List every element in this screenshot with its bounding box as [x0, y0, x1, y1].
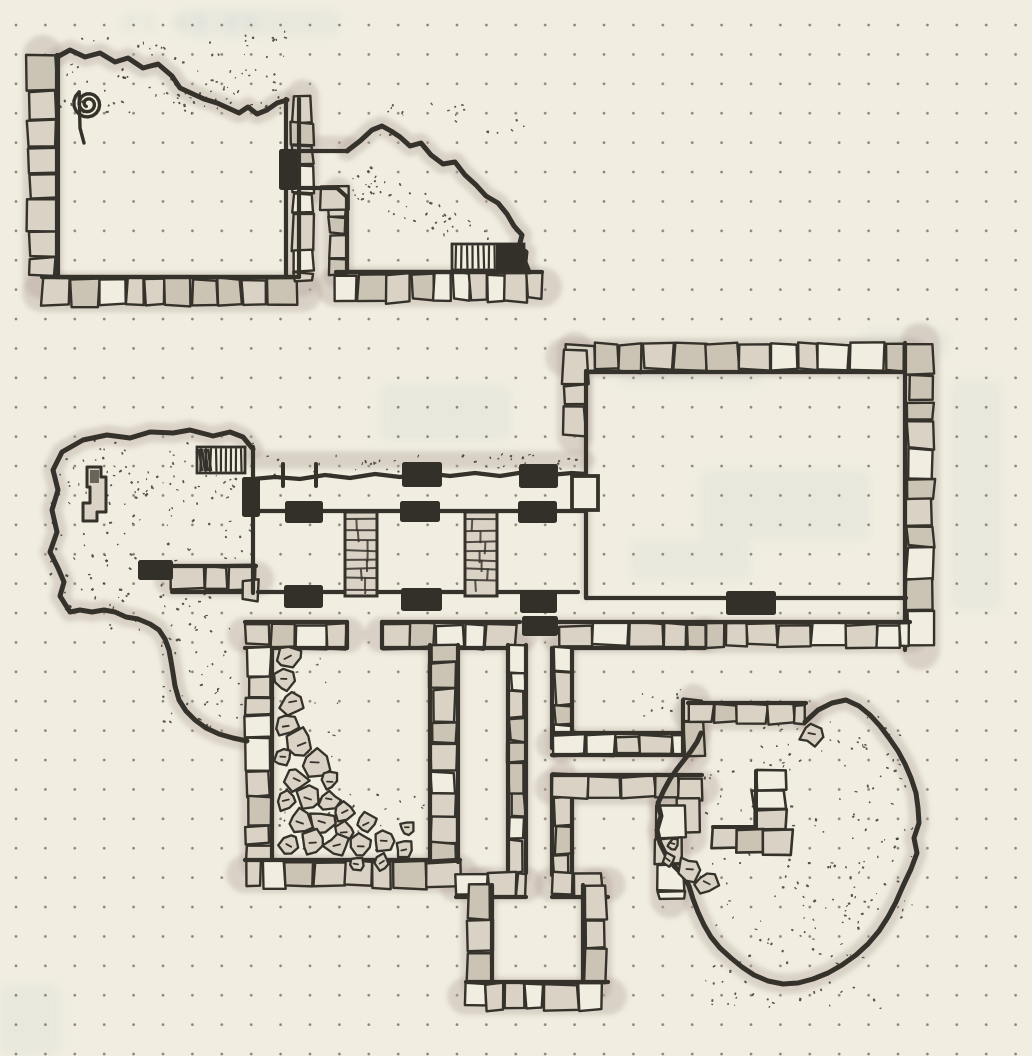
door-top-corridor-south-2 — [400, 501, 440, 522]
door-cavern-to-top-corridor — [242, 477, 260, 517]
wall-corridor-south-3 — [558, 621, 706, 649]
wall-corridor-south-4 — [705, 622, 910, 648]
door-top-corridor-north-1 — [402, 462, 442, 487]
wall-east-room-south — [552, 733, 690, 756]
wall-rubble-room-east — [429, 645, 458, 862]
door-top-corridor-north-2 — [519, 464, 558, 488]
door-cave-partition — [138, 560, 173, 580]
boulder — [274, 749, 290, 765]
door-bottom-corridor-north-2 — [401, 588, 442, 611]
masonry-pillar-2 — [465, 512, 497, 596]
door-room-a-to-b — [279, 149, 298, 190]
wall-east-strip-south — [688, 702, 806, 725]
scanned-journal-page: 21 24 25 — [0, 0, 1032, 1056]
door-top-corridor-south-3 — [518, 501, 557, 523]
wall-small-room-east — [583, 885, 607, 985]
door-stair-corridor-top — [522, 616, 558, 636]
door-great-hall-south — [726, 591, 776, 615]
masonry-pillar-1 — [345, 512, 377, 596]
door-bottom-corridor-north-3 — [520, 590, 557, 613]
door-bottom-corridor-north-1 — [284, 585, 323, 608]
wall-room-a-west — [26, 55, 58, 279]
wall-room-b-south — [335, 271, 543, 303]
stairs-room-b — [452, 243, 525, 271]
wall-rubble-room-west — [244, 647, 273, 864]
wall-room-a-south — [41, 277, 302, 307]
dungeon-map-drawing: 21 24 25 — [0, 0, 1032, 1056]
stairs-cavern — [197, 447, 245, 473]
wall-great-hall-east — [904, 343, 935, 650]
boulder — [397, 841, 412, 857]
door-frame-great-hall-entry — [572, 476, 598, 510]
boulder — [350, 858, 363, 870]
boulder — [376, 830, 395, 851]
door-top-corridor-south-1 — [285, 501, 323, 523]
wall-small-room-west — [467, 884, 493, 985]
wall-small-room-south — [465, 982, 608, 1012]
wall-great-hall-north — [565, 342, 910, 373]
